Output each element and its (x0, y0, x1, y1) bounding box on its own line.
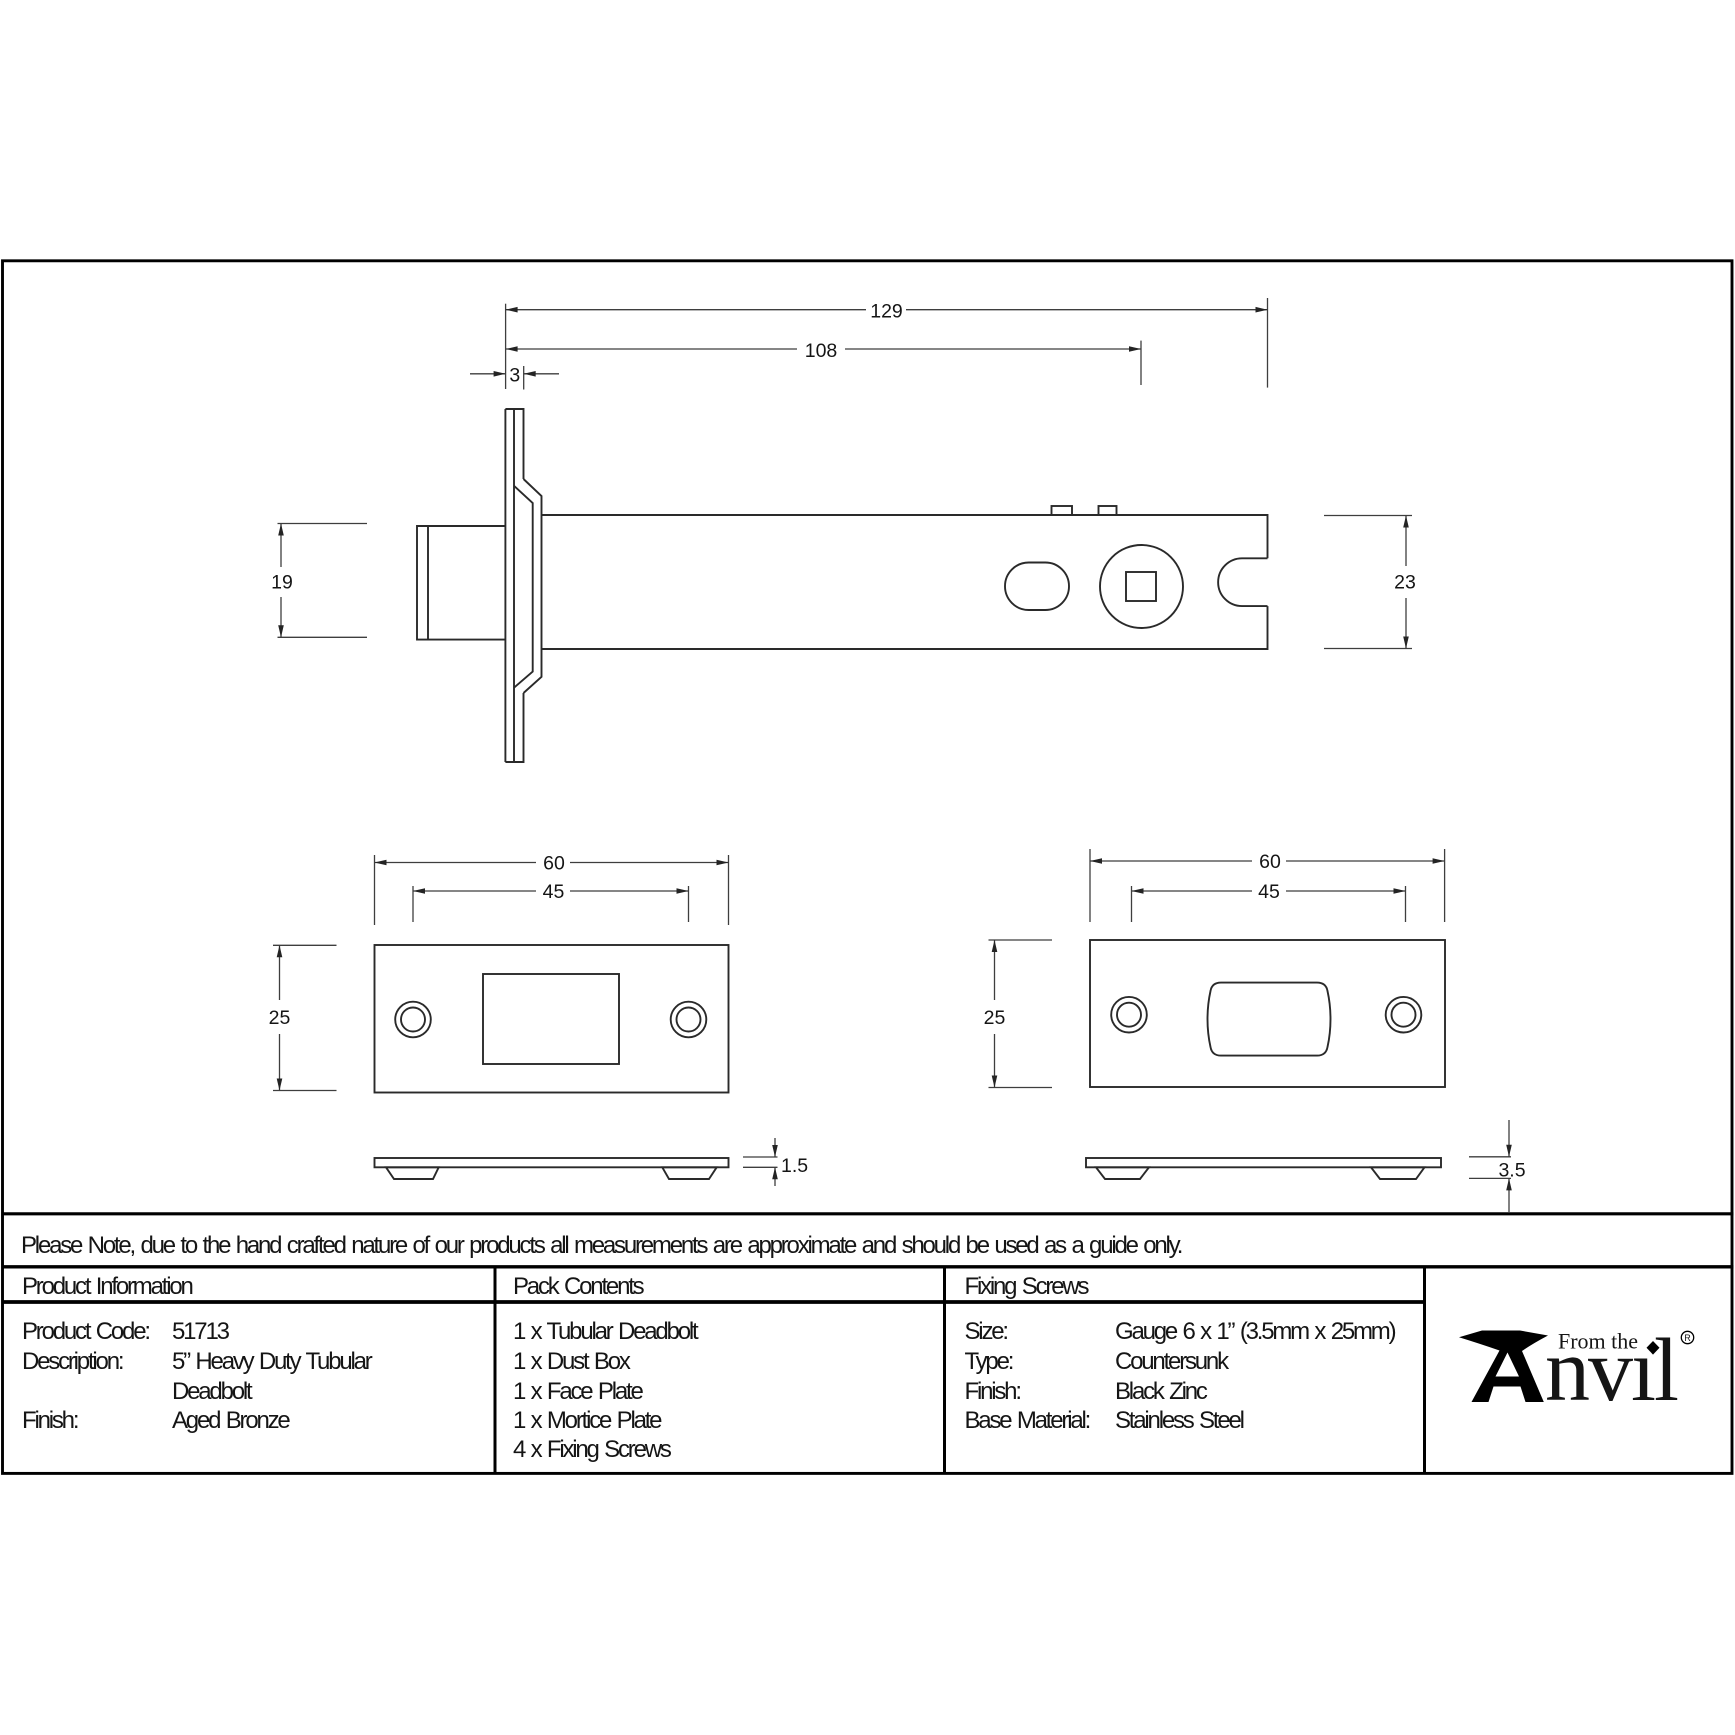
svg-text:19: 19 (271, 572, 293, 594)
svg-text:1 x Mortice Plate: 1 x Mortice Plate (513, 1407, 662, 1434)
svg-text:Please Note, due to the hand c: Please Note, due to the hand crafted nat… (21, 1232, 1182, 1259)
svg-text:Pack Contents: Pack Contents (513, 1273, 645, 1300)
svg-text:51713: 51713 (172, 1318, 230, 1345)
svg-text:3: 3 (509, 365, 520, 387)
svg-text:Deadbolt: Deadbolt (172, 1378, 253, 1405)
svg-text:25: 25 (984, 1007, 1006, 1029)
svg-text:1 x Tubular Deadbolt: 1 x Tubular Deadbolt (513, 1318, 699, 1345)
svg-text:Aged Bronze: Aged Bronze (172, 1407, 290, 1434)
svg-text:Gauge 6 x 1” (3.5mm x 25mm): Gauge 6 x 1” (3.5mm x 25mm) (1115, 1318, 1396, 1345)
svg-text:23: 23 (1394, 572, 1416, 594)
svg-text:108: 108 (805, 340, 838, 362)
svg-text:5” Heavy Duty Tubular: 5” Heavy Duty Tubular (172, 1348, 373, 1375)
svg-text:Fixing Screws: Fixing Screws (965, 1273, 1090, 1300)
svg-text:Product Information: Product Information (22, 1273, 192, 1300)
svg-text:Base Material:: Base Material: (965, 1407, 1090, 1434)
svg-text:25: 25 (269, 1007, 291, 1029)
svg-text:4 x Fixing Screws: 4 x Fixing Screws (513, 1436, 672, 1463)
svg-text:1 x Dust Box: 1 x Dust Box (513, 1348, 631, 1375)
svg-text:60: 60 (1259, 851, 1281, 873)
svg-text:1 x Face Plate: 1 x Face Plate (513, 1378, 643, 1405)
svg-text:R: R (1684, 1333, 1691, 1343)
svg-text:45: 45 (543, 881, 565, 903)
svg-text:129: 129 (870, 301, 903, 323)
svg-text:Size:: Size: (965, 1318, 1008, 1345)
svg-text:Product Code:: Product Code: (22, 1318, 149, 1345)
svg-text:Description:: Description: (22, 1348, 123, 1375)
svg-text:3.5: 3.5 (1498, 1160, 1525, 1182)
svg-text:1.5: 1.5 (781, 1155, 808, 1177)
svg-text:Stainless Steel: Stainless Steel (1115, 1407, 1244, 1434)
svg-text:60: 60 (543, 853, 565, 875)
svg-text:nvıl: nvıl (1545, 1321, 1678, 1420)
svg-text:Finish:: Finish: (965, 1378, 1021, 1405)
svg-text:Countersunk: Countersunk (1115, 1348, 1230, 1375)
svg-text:Type:: Type: (965, 1348, 1013, 1375)
svg-text:45: 45 (1258, 881, 1280, 903)
svg-text:Black Zinc: Black Zinc (1115, 1378, 1208, 1405)
svg-text:Finish:: Finish: (22, 1407, 78, 1434)
